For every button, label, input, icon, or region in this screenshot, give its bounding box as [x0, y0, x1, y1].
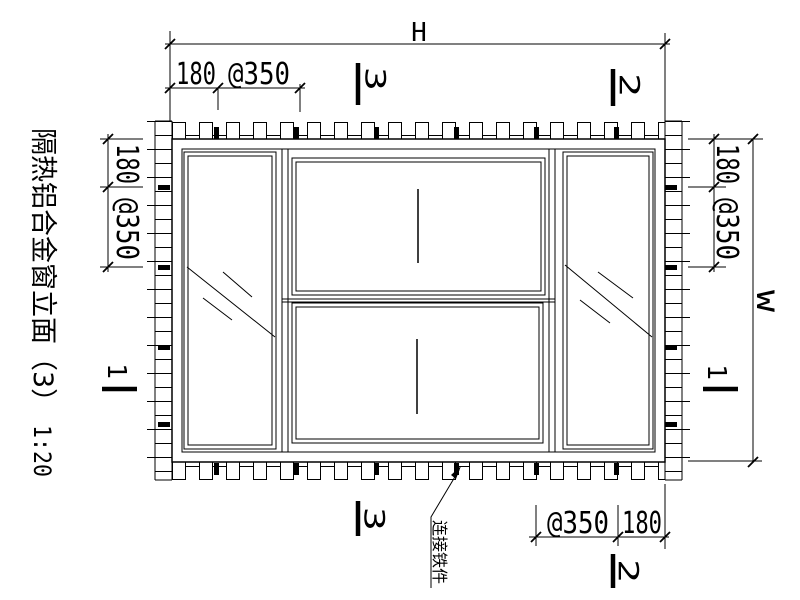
section-1-label-right: 1 [701, 364, 731, 380]
right-fixed-pane [563, 152, 653, 449]
dim-right-edge: 180 [709, 144, 744, 184]
window-frame [172, 139, 665, 462]
section-2-label-bottom: 2 [612, 559, 645, 583]
dim-label-W: W [751, 290, 779, 313]
dim-left-spacing: @350 [109, 198, 144, 260]
dim-left-edge: 180 [109, 144, 144, 184]
window-elevation-drawing: 隔热铝合金窗立面（3） 1:20 H W 180 @350 180 @350 1… [0, 0, 800, 600]
transom-divider [282, 299, 555, 302]
dim-top-spacing: @350 [228, 57, 290, 92]
center-lower-sash [292, 303, 543, 443]
section-3-label-top: 3 [359, 67, 392, 91]
glass-symbol-left [187, 267, 275, 337]
section-3-label-bottom: 3 [358, 507, 391, 531]
dim-label-H: H [411, 18, 427, 48]
section-1-label-left: 1 [101, 363, 131, 379]
drawing-title: 隔热铝合金窗立面（3） [27, 128, 58, 415]
anchor-leader-label: 连接铁件 [430, 520, 449, 584]
dim-bottom-spacing: @350 [547, 506, 609, 541]
cad-sheet: 隔热铝合金窗立面（3） 1:20 H W 180 @350 180 @350 1… [0, 0, 800, 600]
wall-head-hatch [172, 122, 665, 139]
dim-bottom-edge: 180 [622, 506, 662, 541]
glass-symbol-right [565, 265, 652, 337]
drawing-scale: 1:20 [28, 425, 56, 477]
left-fixed-pane [184, 152, 276, 449]
wall-sill-hatch [172, 462, 665, 480]
center-upper-sash [292, 158, 545, 295]
anchor-marks [158, 127, 677, 475]
dim-right-spacing: @350 [709, 198, 744, 260]
dim-top-edge: 180 [176, 57, 216, 92]
section-2-label-top: 2 [613, 73, 646, 97]
